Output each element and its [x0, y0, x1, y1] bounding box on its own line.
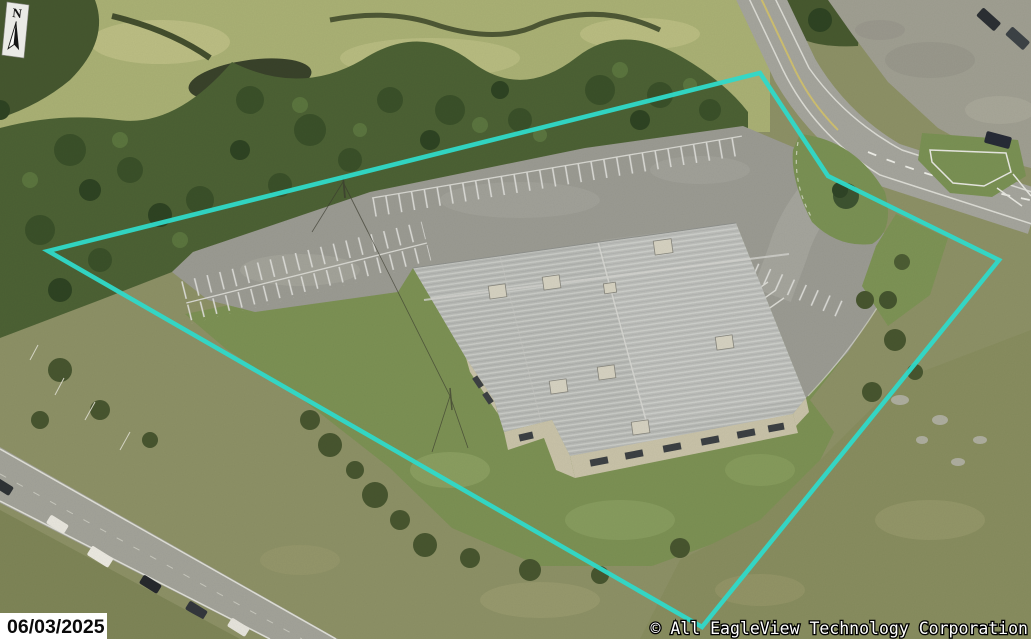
- date-stamp: 06/03/2025: [0, 613, 107, 639]
- aerial-imagery-viewport: N 06/03/2025 © All EagleView Technology …: [0, 0, 1031, 639]
- aerial-photo: N 06/03/2025 © All EagleView Technology …: [0, 0, 1031, 639]
- date-stamp-text: 06/03/2025: [7, 616, 105, 638]
- copyright-text: © All EagleView Technology Corporation: [651, 619, 1029, 638]
- north-arrow-icon: N: [2, 2, 29, 58]
- photo-grain: [0, 0, 1031, 639]
- landscape: [0, 0, 1031, 639]
